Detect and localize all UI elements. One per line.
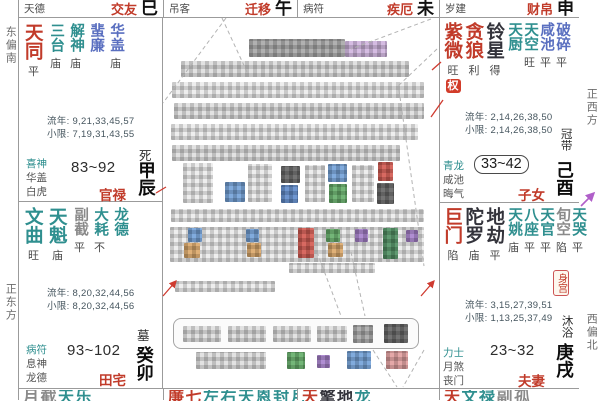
- censored-block: [172, 145, 400, 161]
- censored-block: [281, 166, 300, 183]
- star-name: 解神: [68, 23, 83, 52]
- star-brightness: 庙: [52, 247, 63, 263]
- clipped-star-row: 月截天乐: [23, 390, 92, 401]
- center-toolbar[interactable]: [173, 318, 419, 349]
- clipped-star-row: 天文禄副孤: [444, 390, 530, 401]
- star-column: 华盖 庙: [107, 23, 124, 71]
- star-row: 天同 平 三台 庙 解神 庙 蜚廉: [23, 23, 127, 79]
- compass-label-east: 正东方: [3, 283, 16, 322]
- star-column: 贪狼 利: [464, 22, 484, 78]
- star-name: 紫微: [443, 22, 462, 59]
- shensha-label: 天德: [24, 1, 45, 16]
- star-name: 文曲: [24, 207, 43, 244]
- censored-block: [184, 243, 200, 258]
- censored-block: [377, 183, 394, 204]
- clipped-star-row: 廉七左右天恩封月: [168, 390, 307, 401]
- star-column: 天魁 庙: [47, 207, 68, 263]
- body-palace-badge: 身宫: [553, 270, 569, 296]
- censored-block: [326, 229, 340, 242]
- current-decade-range[interactable]: 33~42: [474, 155, 529, 174]
- xiaoxian-ages: 小限: 7,19,31,43,55: [47, 126, 135, 140]
- star-char: 廉: [168, 390, 184, 401]
- censored-button[interactable]: [228, 326, 266, 342]
- censored-block: [289, 263, 375, 273]
- censored-block: [246, 229, 259, 242]
- censored-block: [171, 209, 424, 222]
- censored-block: [281, 185, 298, 203]
- star-name: 铃星: [485, 22, 504, 59]
- censored-block: [196, 352, 266, 369]
- star-column: 天同 平: [23, 23, 44, 79]
- palace-name: 交友: [111, 0, 137, 18]
- compass-label-west: 正西方: [584, 88, 597, 127]
- star-name: 天空: [522, 22, 537, 51]
- star-char: 封: [273, 390, 289, 401]
- palace-zi-clipped[interactable]: 天擎地龙: [297, 388, 439, 400]
- censored-block: [383, 228, 398, 259]
- star-name: 天同: [24, 23, 43, 60]
- star-brightness: 得: [490, 62, 501, 78]
- star-char: 恩: [256, 390, 272, 401]
- xiaoxian-ages: 小限: 1,13,25,37,49: [465, 310, 553, 324]
- censored-block: [181, 61, 409, 77]
- censored-block: [345, 41, 387, 57]
- censored-block: [305, 165, 325, 202]
- shensha-list: 青龙咸池晦气: [443, 159, 464, 202]
- censored-block: [248, 164, 272, 202]
- shensha-label: 岁建: [445, 1, 466, 16]
- star-brightness: 陷: [556, 239, 567, 255]
- palace-name: 夫妻: [518, 370, 545, 390]
- palace-si-footer[interactable]: 天德 交友 巳: [19, 0, 163, 18]
- star-brightness: 庙: [110, 55, 121, 71]
- palace-name: 子女: [518, 184, 545, 204]
- censored-block: [352, 165, 374, 202]
- palace-name: 财帛: [527, 0, 553, 18]
- life-stage: 冠带: [559, 128, 572, 151]
- star-name: 蜚廉: [88, 23, 103, 52]
- palace-wu-footer[interactable]: 吊客 迁移 午: [163, 0, 297, 18]
- star-char: 天: [302, 390, 318, 401]
- star-name: 旬空: [554, 207, 569, 236]
- star-name: 龙德: [112, 207, 127, 236]
- star-brightness: 利: [469, 62, 480, 78]
- censored-block: [174, 103, 424, 119]
- censored-block: [247, 243, 261, 257]
- shensha-item: 龙德: [26, 371, 47, 385]
- star-column: 天空 旺: [522, 22, 537, 70]
- shensha-item: 力士: [443, 346, 464, 360]
- star-brightness: 平: [572, 239, 583, 255]
- star-brightness: 旺: [524, 54, 535, 70]
- ganzhi-label: 己酉: [555, 161, 574, 196]
- palace-wei-footer[interactable]: 病符 疾厄 未: [297, 0, 439, 18]
- xiaoxian-ages: 小限: 2,14,26,38,50: [465, 122, 553, 136]
- star-column: 旬空 陷: [554, 207, 569, 255]
- star-char: 截: [41, 390, 57, 401]
- star-row: 巨门 陷 陀罗 庙 地劫 平 天姚 庙: [443, 207, 586, 263]
- star-brightness: 旺: [448, 62, 459, 78]
- star-name: 陀罗: [464, 207, 483, 244]
- star-char: 擎: [320, 390, 336, 401]
- ganzhi-label: 庚戌: [555, 343, 574, 378]
- star-char: 左: [203, 390, 219, 401]
- star-column: 三台 庙: [47, 23, 64, 71]
- star-brightness: 平: [540, 54, 551, 70]
- life-stage: 沐浴: [560, 315, 573, 338]
- star-column: 龙德: [111, 207, 128, 252]
- shensha-item: 华盖: [26, 171, 47, 185]
- star-char: 地: [337, 390, 353, 401]
- censored-button[interactable]: [317, 326, 347, 342]
- shensha-list: 病符息神龙德: [26, 343, 47, 386]
- censored-block: [386, 351, 408, 369]
- censored-block: [287, 352, 305, 369]
- star-brightness: 庙: [508, 239, 519, 255]
- xiaoxian-ages: 小限: 8,20,32,44,56: [47, 298, 135, 312]
- censored-block: [328, 164, 347, 182]
- star-name: 大耗: [92, 207, 107, 236]
- censored-block: [378, 162, 393, 181]
- star-column: 八座 平: [522, 207, 537, 255]
- shensha-item: 咸池: [443, 173, 464, 187]
- palace-name: 官禄: [99, 184, 126, 204]
- clipped-star-row: 天擎地龙: [302, 390, 371, 401]
- star-char: 天: [58, 390, 74, 401]
- star-column: 铃星 得: [485, 22, 505, 78]
- hua-badge: 权: [446, 79, 461, 93]
- decade-range: 83~92: [71, 159, 116, 176]
- compass-label-west-north: 西偏北: [584, 313, 597, 352]
- palace-chou-clipped[interactable]: 廉七左右天恩封月: [163, 388, 297, 400]
- star-name: 八座: [522, 207, 537, 236]
- star-brightness: 平: [556, 54, 567, 70]
- compass-label-east-south: 东偏南: [3, 26, 16, 65]
- shensha-item: 息神: [26, 357, 47, 371]
- shensha-item: 病符: [26, 343, 47, 357]
- star-column: 紫微 旺 权: [443, 22, 463, 93]
- star-name: 巨门: [443, 207, 462, 244]
- palace-name: 迁移: [245, 0, 271, 18]
- star-column: 地劫 平: [485, 207, 505, 263]
- censored-block: [329, 184, 347, 203]
- star-column: 天姚 庙: [506, 207, 521, 255]
- ziwei-chart-app: { "compass": {"left_top":"东偏南","left_bot…: [0, 0, 600, 400]
- shensha-item: 晦气: [443, 187, 464, 201]
- star-brightness: 平: [28, 63, 39, 79]
- liunian-ages: 流年: 3,15,27,39,51: [465, 297, 553, 311]
- censored-block: [171, 124, 418, 140]
- ganzhi-label: 甲辰: [137, 161, 156, 196]
- star-name: 三台: [48, 23, 63, 52]
- star-name: 天官: [538, 207, 553, 236]
- branch-char: 申: [557, 0, 574, 18]
- star-brightness: 不: [94, 239, 105, 255]
- liunian-ages: 流年: 2,14,26,38,50: [465, 109, 553, 123]
- shensha-item: 月煞: [443, 360, 464, 374]
- star-brightness: 平: [540, 239, 551, 255]
- censored-block: [188, 228, 202, 242]
- star-column: 天哭 平: [570, 207, 585, 255]
- liunian-ages: 流年: 9,21,33,45,57: [47, 113, 135, 127]
- star-row: 紫微 旺 权 贪狼 利 铃星 得 天厨: [443, 22, 570, 93]
- palace-xu-fuqi[interactable]: 巨门 陷 陀罗 庙 地劫 平 天姚 庙: [439, 203, 579, 388]
- shensha-list: 喜神华盖白虎: [26, 157, 47, 200]
- palace-name: 田宅: [99, 369, 126, 389]
- censored-block: [172, 82, 424, 98]
- star-brightness: 平: [524, 239, 535, 255]
- star-column: 副截 平: [71, 207, 88, 255]
- star-name: 天厨: [506, 22, 521, 51]
- life-stage: 墓: [137, 325, 150, 344]
- star-brightness: 平: [74, 239, 85, 255]
- star-brightness: 旺: [28, 247, 39, 263]
- star-char: 乐: [76, 390, 92, 401]
- star-char: 文: [462, 390, 478, 401]
- decade-range: 93~102: [67, 342, 120, 359]
- star-char: 禄: [479, 390, 495, 401]
- censored-block: [225, 182, 245, 202]
- shensha-item: 白虎: [26, 185, 47, 199]
- shensha-label: 病符: [303, 1, 324, 16]
- star-column: 蜚廉: [87, 23, 104, 68]
- star-column: 解神 庙: [67, 23, 84, 71]
- branch-char: 巳: [141, 0, 158, 18]
- star-char: 龙: [355, 390, 371, 401]
- censored-block: [183, 163, 213, 203]
- star-column: 天厨: [506, 22, 521, 67]
- palace-name: 疾厄: [387, 0, 413, 18]
- shensha-item: 喜神: [26, 157, 47, 171]
- star-column: 大耗 不: [91, 207, 108, 255]
- palace-you-zinv[interactable]: 紫微 旺 权 贪狼 利 铃星 得 天厨: [439, 18, 579, 203]
- shensha-list: 力士月煞丧门: [443, 346, 464, 389]
- branch-char: 午: [275, 0, 292, 18]
- star-name: 天哭: [570, 207, 585, 236]
- star-brightness: 庙: [70, 55, 81, 71]
- star-char: 月: [23, 390, 39, 401]
- star-char: 天: [444, 390, 460, 401]
- liunian-ages: 流年: 8,20,32,44,56: [47, 285, 135, 299]
- star-column: 巨门 陷: [443, 207, 463, 263]
- star-name: 破碎: [554, 22, 569, 51]
- censored-button[interactable]: [384, 324, 408, 343]
- star-column: 咸池 平: [538, 22, 553, 70]
- palace-hai-clipped[interactable]: 天文禄副孤: [439, 388, 579, 400]
- censored-block: [406, 230, 418, 242]
- censored-button[interactable]: [353, 325, 373, 343]
- star-name: 咸池: [538, 22, 553, 51]
- censored-block: [328, 243, 343, 257]
- star-column: 陀罗 庙: [464, 207, 484, 263]
- star-name: 地劫: [485, 207, 504, 244]
- star-name: 副截: [72, 207, 87, 236]
- censored-button[interactable]: [273, 326, 311, 342]
- star-column: 文曲 旺: [23, 207, 44, 263]
- star-name: 华盖: [108, 23, 123, 52]
- censored-block: [298, 228, 314, 258]
- star-char: 右: [221, 390, 237, 401]
- censored-button[interactable]: [183, 326, 221, 342]
- censored-block: [175, 281, 275, 292]
- star-char: 孤: [514, 390, 530, 401]
- star-row: 文曲 旺 天魁 庙 副截 平 大耗 不: [23, 207, 131, 263]
- shensha-label: 吊客: [169, 1, 190, 16]
- star-name: 天姚: [506, 207, 521, 236]
- palace-yin-clipped[interactable]: 月截天乐: [19, 388, 163, 400]
- star-brightness: 平: [490, 247, 501, 263]
- palace-chen-guanlu[interactable]: 天同 平 三台 庙 解神 庙 蜚廉: [19, 18, 163, 202]
- palace-shen-footer[interactable]: 岁建 财帛 申: [439, 0, 579, 18]
- purple-direction-arrow: [581, 193, 594, 206]
- star-char: 七: [186, 390, 202, 401]
- star-brightness: 陷: [448, 247, 459, 263]
- star-column: 天官 平: [538, 207, 553, 255]
- ganzhi-label: 癸卯: [135, 346, 154, 381]
- censored-block: [317, 355, 330, 368]
- censored-block: [347, 351, 371, 369]
- branch-char: 未: [417, 0, 434, 18]
- star-char: 天: [238, 390, 254, 401]
- star-char: 副: [497, 390, 513, 401]
- star-column: 破碎 平: [554, 22, 569, 70]
- shensha-item: 丧门: [443, 374, 464, 388]
- shensha-item: 青龙: [443, 159, 464, 173]
- censored-block: [355, 229, 368, 242]
- decade-range: 23~32: [490, 342, 535, 359]
- star-brightness: 庙: [50, 55, 61, 71]
- star-brightness: 庙: [469, 247, 480, 263]
- star-name: 天魁: [48, 207, 67, 244]
- censored-block: [249, 39, 345, 57]
- palace-mao-tianzhai[interactable]: 文曲 旺 天魁 庙 副截 平 大耗 不: [19, 202, 163, 388]
- star-name: 贪狼: [464, 22, 483, 59]
